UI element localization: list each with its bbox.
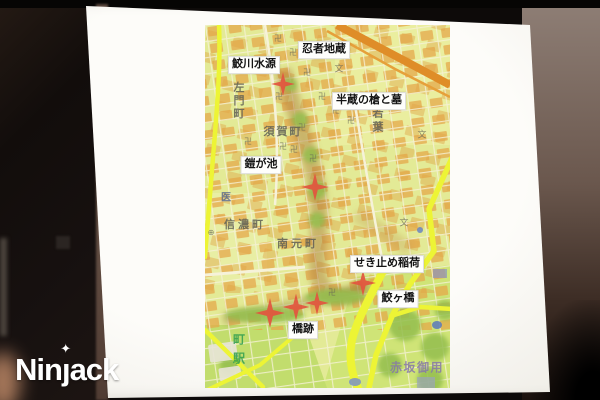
ninjack-logo: Nin✦ȷack [15, 352, 118, 388]
place-name-suga-cho: 須賀町 [264, 123, 303, 139]
school-icon: 文 [334, 65, 343, 74]
place-name-akasaka-goyo: 赤坂御用 [390, 359, 444, 376]
place-name-station: 町駅 [231, 333, 248, 371]
logo-j: ✦ȷ [62, 352, 70, 388]
map-label-hashiato: 橋跡 [288, 321, 318, 339]
map-label-samegawa-suigen: 鮫川水源 [228, 56, 280, 74]
logo-text-post: ack [70, 352, 119, 387]
shuriken-star-icon: ✦ [60, 341, 71, 357]
map-marker-star [301, 173, 329, 201]
photo-of-presentation: 左門町須賀町若葉医信濃町南元町町駅赤坂御用卍卍卍卍卍卍卍卍卍卍卍卍卍文文文⊕忍者… [0, 0, 600, 400]
place-name-wakaba: 若葉 [369, 107, 385, 135]
temple-manji-icon: 卍 [328, 289, 336, 297]
place-name-hospital: 医 [221, 189, 231, 204]
place-name-samon-cho: 左門町 [230, 82, 246, 121]
temple-manji-icon: 卍 [274, 35, 282, 43]
map-marker-star [283, 294, 310, 321]
map-marker-star [350, 270, 376, 296]
temple-manji-icon: 卍 [303, 69, 311, 77]
relief-map: 左門町須賀町若葉医信濃町南元町町駅赤坂御用卍卍卍卍卍卍卍卍卍卍卍卍卍文文文⊕忍者… [205, 25, 450, 388]
temple-manji-icon: 卍 [309, 155, 317, 163]
temple-manji-icon: 卍 [289, 49, 297, 57]
room-left-highlight [0, 238, 7, 336]
map-marker-star [255, 298, 285, 328]
temple-manji-icon: 卍 [347, 117, 355, 125]
temple-manji-icon: 卍 [244, 138, 252, 146]
place-name-shinano-machi: 信濃町 [224, 216, 266, 232]
school-icon: 文 [399, 219, 408, 228]
logo-text-pre: Nin [15, 352, 62, 387]
map-label-samegabashi: 鮫ヶ橋 [378, 290, 419, 308]
clinic-icon: ⊕ [208, 229, 215, 237]
temple-manji-icon: 卍 [279, 143, 287, 151]
place-name-minamimoto-machi: 南元町 [277, 235, 319, 251]
temple-manji-icon: 卍 [275, 93, 283, 101]
map-label-sekitome-inari: せき止め稲荷 [350, 255, 424, 273]
map-label-hanzo-yari-to-haka: 半蔵の槍と墓 [332, 92, 406, 110]
map-label-yoroigaike: 鎧が池 [241, 156, 282, 174]
map-marker-star [305, 291, 329, 315]
room-wall-detail [56, 236, 70, 249]
school-icon: 文 [417, 131, 426, 140]
map-label-ninja-jizo: 忍者地蔵 [298, 41, 350, 59]
temple-manji-icon: 卍 [298, 124, 306, 132]
map-overlay-layer: 左門町須賀町若葉医信濃町南元町町駅赤坂御用卍卍卍卍卍卍卍卍卍卍卍卍卍文文文⊕忍者… [205, 25, 450, 388]
temple-manji-icon: 卍 [318, 93, 326, 101]
temple-manji-icon: 卍 [290, 146, 298, 154]
